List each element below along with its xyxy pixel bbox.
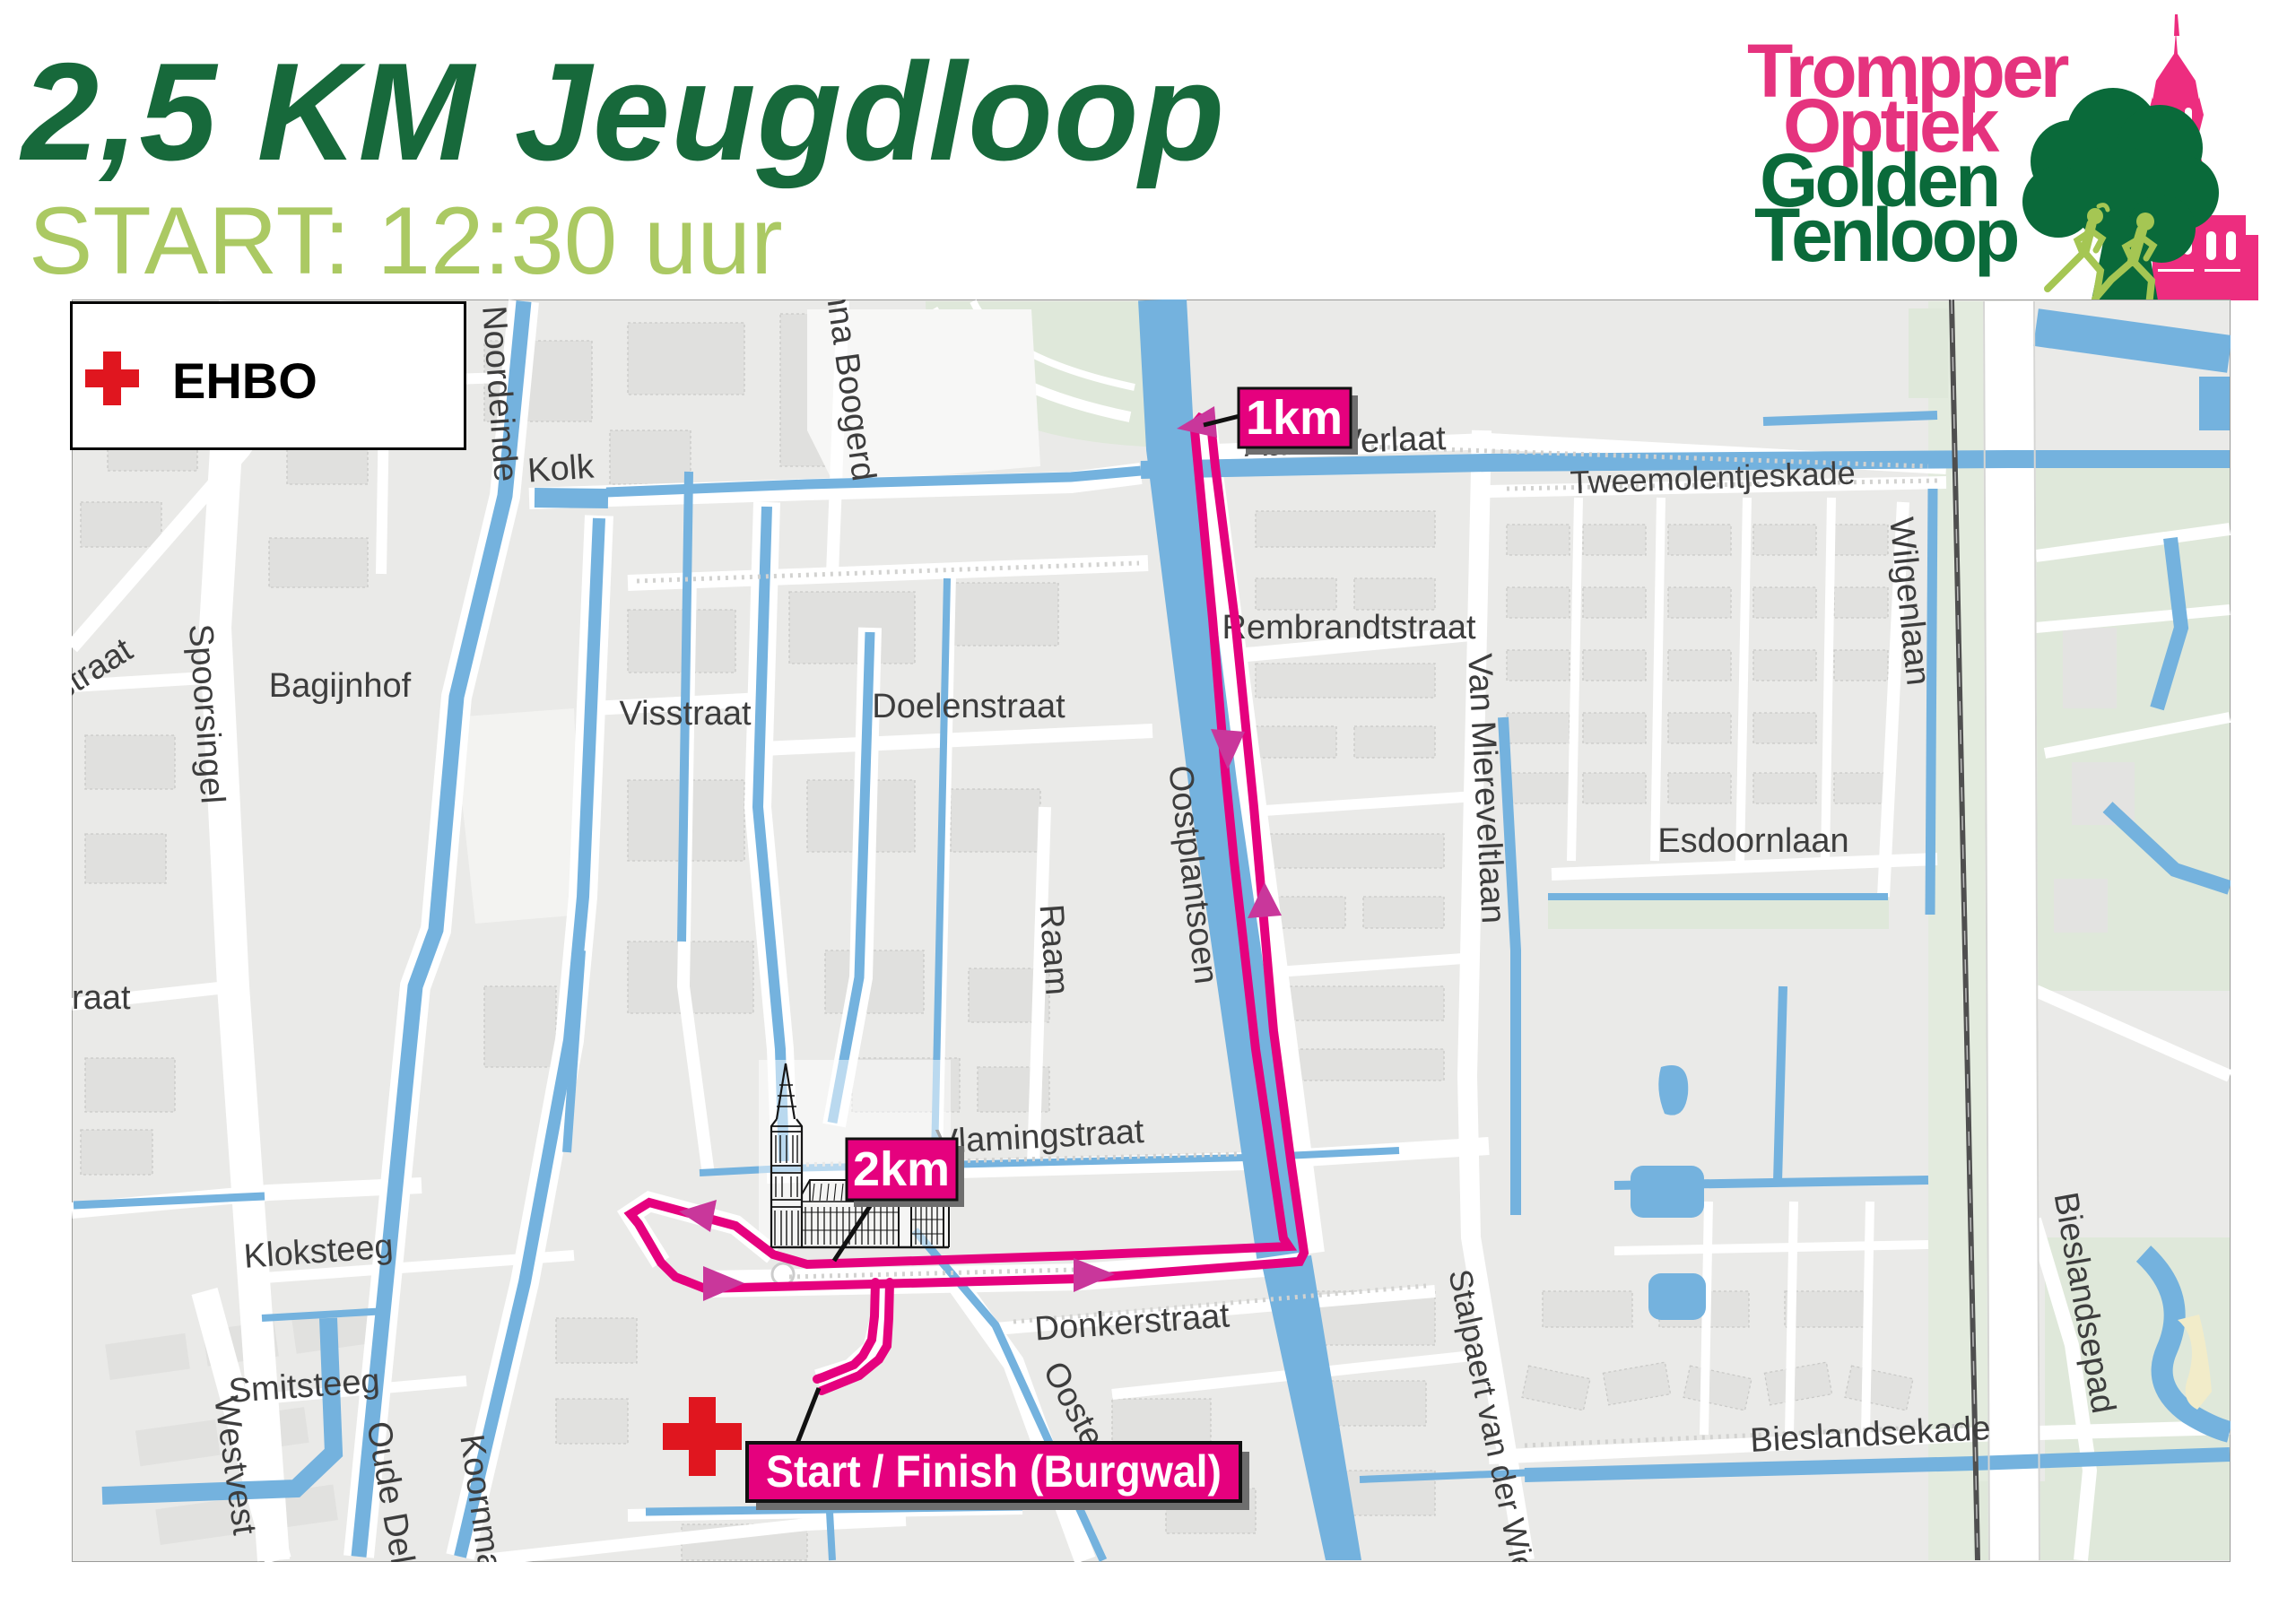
svg-text:1km: 1km <box>1246 391 1343 445</box>
svg-text:Start / Finish (Burgwal): Start / Finish (Burgwal) <box>766 1446 1222 1497</box>
svg-text:straat: straat <box>72 979 131 1017</box>
svg-text:Tenloop: Tenloop <box>1754 193 2017 277</box>
svg-text:Bagijnhof: Bagijnhof <box>269 667 412 705</box>
svg-text:Visstraat: Visstraat <box>619 695 752 733</box>
svg-text:Doelenstraat: Doelenstraat <box>872 688 1065 725</box>
svg-text:2km: 2km <box>853 1142 950 1196</box>
svg-text:Kolk: Kolk <box>526 447 596 490</box>
svg-text:Raam: Raam <box>1031 903 1075 996</box>
svg-text:Esdoornlaan: Esdoornlaan <box>1657 822 1848 860</box>
svg-text:Rembrandtstraat: Rembrandtstraat <box>1222 609 1475 647</box>
